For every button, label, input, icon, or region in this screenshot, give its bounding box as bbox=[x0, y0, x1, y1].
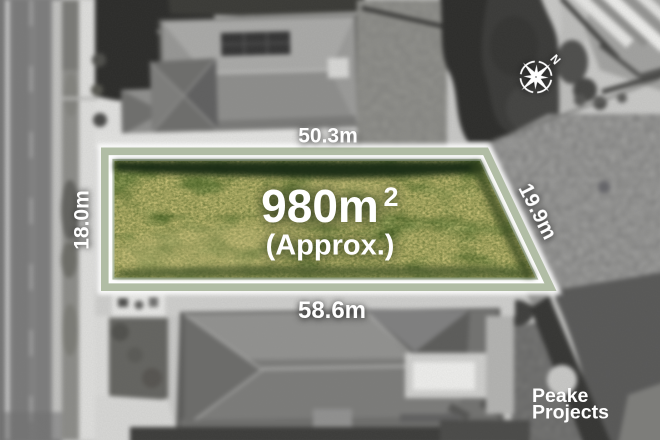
svg-text:980m: 980m bbox=[261, 180, 379, 232]
svg-text:58.6m: 58.6m bbox=[298, 297, 366, 324]
svg-text:Projects: Projects bbox=[532, 402, 609, 424]
svg-text:2: 2 bbox=[383, 182, 398, 212]
svg-text:18.0m: 18.0m bbox=[71, 190, 94, 250]
svg-text:(Approx.): (Approx.) bbox=[266, 230, 395, 262]
svg-text:50.3m: 50.3m bbox=[298, 125, 358, 148]
